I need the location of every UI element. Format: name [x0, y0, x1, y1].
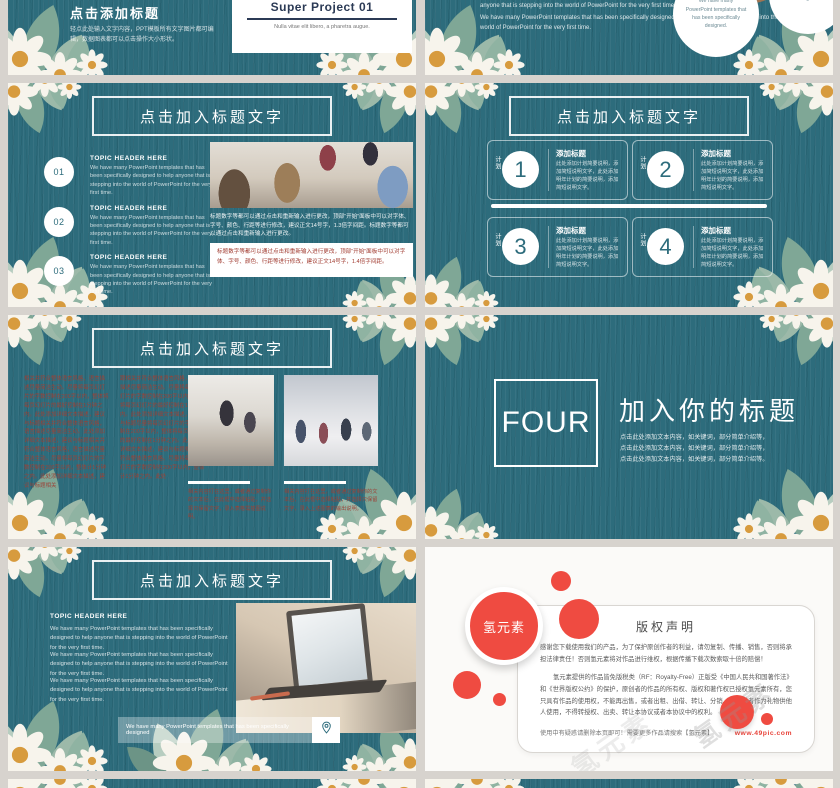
slide-next-row — [425, 779, 833, 788]
card-header: 添加标题 — [701, 225, 731, 236]
paragraph: We have many PowerPoint templates that h… — [50, 625, 232, 653]
slide-title-box: 点击加入标题文字 — [509, 96, 749, 136]
divider — [247, 18, 397, 20]
paragraph: We have many PowerPoint templates that h… — [50, 651, 232, 679]
meeting-photo — [210, 142, 413, 208]
plan-card: 计划 2 添加标题 此处添加计划简要说明，添加简短说明文字，此处添加明年计划的简… — [632, 140, 773, 200]
flower-decoration — [8, 779, 124, 788]
card-header: 添加标题 — [556, 225, 586, 236]
section-title: 加入你的标题 — [619, 391, 799, 428]
slide-about: 点击加入标题文字 TOPIC HEADER HERE We have many … — [8, 547, 416, 771]
slide-title-box: 点击加入标题文字 — [92, 328, 332, 368]
red-dot — [761, 713, 773, 725]
list-item: 03 TOPIC HEADER HERE We have many PowerP… — [44, 254, 212, 297]
item-text: We have many PowerPoint templates that h… — [90, 263, 212, 297]
note-box: 标题数字等都可以通过点击和重新输入进行更改，顶部“开始”面板中可以对字体、字号、… — [210, 243, 413, 277]
section-number-box: FOUR — [494, 379, 598, 467]
plan-card: 计划 4 添加标题 此处添加计划简要说明，添加简短说明文字，此处添加明年计划的简… — [632, 217, 773, 277]
divider — [548, 149, 549, 191]
flower-decoration — [425, 779, 541, 788]
divider — [693, 226, 694, 268]
photo-caption: 标题数字等都可以通过点击和重新输入进行更改，顶部“开始”面板中可以对字体、字号、… — [210, 213, 413, 239]
slide-title-box: 点击加入标题文字 — [92, 96, 332, 136]
list-item: 02 TOPIC HEADER HERE We have many PowerP… — [44, 205, 212, 248]
card-number: 2 — [647, 151, 684, 188]
card-tag: 计划 — [638, 156, 647, 170]
laptop-photo — [236, 603, 416, 733]
slide-details: 点击加入标题文字 相关并符合整体语言风格，语言描述尽量简洁生动。尽量将每页幻灯片… — [8, 315, 416, 539]
item-text: We have many PowerPoint templates that h… — [90, 164, 212, 198]
cover-heading: 点击添加标题 — [70, 3, 160, 22]
topic-list: 01 TOPIC HEADER HERE We have many PowerP… — [44, 155, 212, 304]
flower-decoration — [425, 0, 541, 75]
number-badge: 01 — [44, 157, 74, 187]
lobby-photo — [284, 375, 378, 466]
website-link[interactable]: www.49pic.com — [735, 730, 792, 737]
list-item: 01 TOPIC HEADER HERE We have many PowerP… — [44, 155, 212, 198]
slide-next-row — [8, 779, 416, 788]
flower-decoration — [300, 779, 416, 788]
card-text: 此处添加计划简要说明，添加简短说明文字，此处添加明年计划的简要说明，添加简短说明… — [556, 160, 620, 192]
cover-subtitle: Nulla vitae elit libero, a pharetra augu… — [274, 24, 370, 30]
slide-intro: anyone that is stepping into the world o… — [425, 0, 833, 75]
red-dot — [559, 599, 599, 639]
pin-button — [312, 717, 340, 743]
slide-topics: 点击加入标题文字 01 TOPIC HEADER HERE We have ma… — [8, 83, 416, 307]
slide-title-box: 点击加入标题文字 — [92, 560, 332, 600]
card-header: 添加标题 — [556, 148, 586, 159]
plan-cards: 计划 1 添加标题 此处添加计划简要说明，添加简短说明文字，此处添加明年计划的简… — [487, 140, 771, 280]
footer-note: 使用中有疑惑请删除本页即可！需要更多作品请搜索【氢元素】 — [540, 728, 713, 737]
location-pin-icon — [320, 721, 333, 739]
plan-card: 计划 3 添加标题 此处添加计划简要说明，添加简短说明文字，此处添加明年计划的简… — [487, 217, 628, 277]
slide-copyright: 版权声明 感谢您下载使用我们的产品，为了保护原创作者的利益，请勿复制、传播、销售… — [425, 547, 833, 771]
slide-plans: 点击加入标题文字 计划 1 添加标题 此处添加计划简要说明，添加简短说明文字，此… — [425, 83, 833, 307]
red-dot — [720, 695, 754, 729]
paragraph: We have many PowerPoint templates that h… — [50, 677, 232, 705]
office-photo — [188, 375, 274, 466]
underline — [284, 481, 346, 484]
slide-cover: 点击添加标题 轻点此处输入文字内容，PPT模板所有文字图片都可编辑，数据图表都可… — [8, 0, 416, 75]
card-text: 此处添加计划简要说明，添加简短说明文字，此处添加明年计划的简要说明，添加简短说明… — [701, 160, 765, 192]
divider — [693, 149, 694, 191]
card-text: 此处添加计划简要说明，添加简短说明文字，此处添加明年计划的简要说明，添加简短说明… — [701, 237, 765, 269]
card-number: 1 — [502, 151, 539, 188]
description-line: 点击此处添加文本内容，如关键词，部分简单介绍等， — [620, 433, 810, 444]
cover-body-text: 轻点此处输入文字内容，PPT模板所有文字图片都可编辑，数据图表都可以点击操作大小… — [70, 25, 222, 45]
card-text: 此处添加计划简要说明，添加简短说明文字，此处添加明年计划的简要说明，添加简短说明… — [556, 237, 620, 269]
flower-decoration — [747, 315, 833, 399]
flower-decoration — [425, 455, 511, 539]
copyright-footer: 使用中有疑惑请删除本页即可！需要更多作品请搜索【氢元素】 www.49pic.c… — [540, 728, 792, 737]
number-badge: 03 — [44, 256, 74, 286]
red-dot — [453, 671, 481, 699]
red-dot — [551, 571, 571, 591]
slide-section-four: FOUR 加入你的标题 点击此处添加文本内容，如关键词，部分简单介绍等， 点击此… — [425, 315, 833, 539]
divider — [491, 204, 767, 208]
laptop-screen — [286, 603, 373, 691]
item-header: TOPIC HEADER HERE — [90, 155, 212, 162]
plan-card: 计划 1 添加标题 此处添加计划简要说明，添加简短说明文字，此处添加明年计划的简… — [487, 140, 628, 200]
flower-decoration — [717, 779, 833, 788]
section-description: 点击此处添加文本内容，如关键词，部分简单介绍等， 点击此处添加文本内容，如关键词… — [620, 433, 810, 466]
item-header: TOPIC HEADER HERE — [90, 254, 212, 261]
description-line: 点击此处添加文本内容，如关键词，部分简单介绍等。 — [620, 455, 810, 466]
card-tag: 计划 — [638, 233, 647, 247]
cover-project-title: Super Project 01 — [271, 0, 374, 14]
card-tag: 计划 — [493, 156, 502, 170]
card-tag: 计划 — [493, 233, 502, 247]
text-bubble: We have many PowerPoint templates that h… — [673, 0, 759, 57]
cover-title-card: Super Project 01 Nulla vitae elit libero… — [232, 0, 412, 53]
divider — [548, 226, 549, 268]
photo-caption: 相关内容打在这里，或者通过复制你的文本后，在此框中选择粘贴，并选择只保留文字，录… — [284, 488, 378, 513]
item-text: We have many PowerPoint templates that h… — [90, 214, 212, 248]
copyright-paragraph: 感谢您下载使用我们的产品，为了保护原创作者的利益，请勿复制、传播、销售，否则将承… — [540, 642, 792, 665]
card-header: 添加标题 — [701, 148, 731, 159]
template-preview-page: 点击添加标题 轻点此处输入文字内容，PPT模板所有文字图片都可编辑，数据图表都可… — [0, 0, 840, 788]
number-badge: 02 — [44, 207, 74, 237]
card-number: 3 — [502, 228, 539, 265]
underline — [188, 481, 250, 484]
red-dot — [493, 693, 506, 706]
brand-badge: 氢元素 — [465, 587, 543, 665]
topic-header: TOPIC HEADER HERE — [50, 613, 127, 620]
text-column: 相关并符合整体语言风格，语言描述尽量简洁生动。尽量将每页幻灯片的字数控制在200… — [24, 375, 110, 525]
copyright-paragraph: 氢元素提供的作品皆免版税类（RF：Royalty-Free）正版受《中国人民共和… — [540, 672, 792, 719]
item-header: TOPIC HEADER HERE — [90, 205, 212, 212]
photo-caption: 相关内容打在这里，或者通过复制你的文本后，在此框中选择粘贴，并选择只保留文字，录… — [188, 488, 276, 521]
description-line: 点击此处添加文本内容，如关键词，部分简单介绍等， — [620, 444, 810, 455]
caption-bar: We have many PowerPoint templates that h… — [118, 717, 312, 743]
card-number: 4 — [647, 228, 684, 265]
